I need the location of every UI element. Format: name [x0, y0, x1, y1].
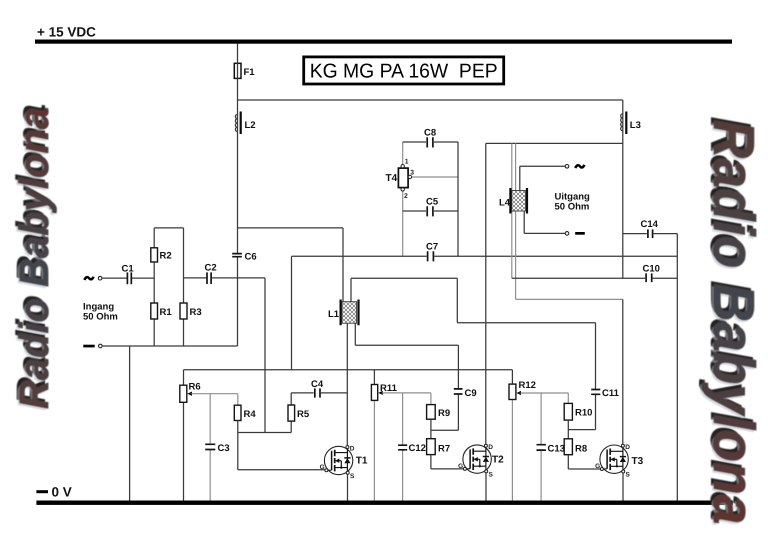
svg-text:R1: R1	[160, 307, 173, 318]
svg-text:50 Ohm: 50 Ohm	[555, 201, 590, 212]
svg-text:3: 3	[410, 170, 414, 177]
svg-text:C1: C1	[122, 264, 135, 275]
svg-text:R6: R6	[189, 382, 201, 393]
svg-text:C5: C5	[426, 197, 439, 208]
svg-text:L2: L2	[245, 120, 256, 131]
svg-text:C2: C2	[205, 263, 217, 274]
svg-text:2: 2	[404, 193, 408, 200]
svg-text:F1: F1	[244, 67, 256, 78]
svg-text:C9: C9	[465, 388, 477, 399]
svg-text:L3: L3	[630, 120, 641, 131]
svg-text:C4: C4	[311, 379, 324, 390]
svg-text:50 Ohm: 50 Ohm	[83, 312, 118, 323]
svg-text:0 V: 0 V	[52, 485, 72, 500]
svg-text:T4: T4	[386, 173, 398, 184]
svg-text:C10: C10	[643, 264, 660, 275]
svg-text:C12: C12	[409, 443, 426, 454]
svg-text:Radio Babylona: Radio Babylona	[11, 107, 57, 409]
svg-text:+ 15 VDC: + 15 VDC	[37, 25, 96, 40]
svg-text:T1: T1	[356, 456, 368, 467]
svg-text:L4: L4	[499, 198, 511, 209]
svg-text:R8: R8	[575, 444, 587, 455]
svg-text:R5: R5	[297, 409, 310, 420]
svg-text:R9: R9	[438, 408, 450, 419]
svg-text:Radio Babylona: Radio Babylona	[701, 120, 766, 525]
svg-text:L1: L1	[328, 309, 340, 320]
svg-text:C8: C8	[424, 128, 436, 139]
svg-text:R4: R4	[244, 409, 257, 420]
svg-text:C11: C11	[602, 388, 620, 399]
svg-text:C6: C6	[245, 252, 257, 263]
svg-text:R3: R3	[190, 307, 202, 318]
svg-text:R12: R12	[519, 380, 536, 391]
svg-text:R7: R7	[438, 444, 450, 455]
svg-text:C13: C13	[548, 444, 565, 455]
svg-text:C3: C3	[218, 443, 230, 454]
svg-text:C7: C7	[426, 242, 438, 253]
svg-text:T2: T2	[492, 454, 504, 465]
svg-text:1: 1	[405, 159, 409, 166]
svg-text:C14: C14	[641, 219, 659, 230]
svg-text:R10: R10	[575, 408, 592, 419]
svg-text:KG MG PA 16W PEP: KG MG PA 16W PEP	[310, 61, 498, 83]
svg-text:R2: R2	[160, 251, 172, 262]
svg-text:T3: T3	[632, 456, 644, 467]
